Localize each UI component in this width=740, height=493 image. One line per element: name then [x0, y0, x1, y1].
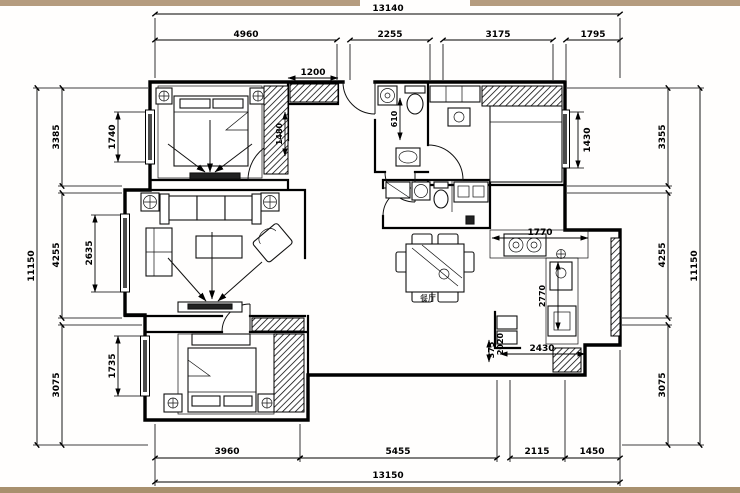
entry-door: [343, 82, 375, 114]
toilet: [405, 86, 425, 114]
dim-left-inner-1: 1740: [108, 124, 118, 149]
dim-top-seg-1: 4960: [233, 30, 258, 40]
dim-bottom-seg-2: 5455: [385, 447, 410, 457]
hall-closet: [290, 84, 338, 102]
closet: [252, 318, 304, 331]
cabinet: [430, 86, 480, 102]
kitchen-sink: [550, 250, 572, 291]
floor-drain: [466, 216, 474, 224]
window-living: [121, 214, 130, 292]
dim-left-overall: 11150: [27, 250, 37, 281]
dim-bottom-seg-3: 2115: [524, 447, 549, 457]
room-dining: 餐厅: [396, 234, 474, 303]
edge-strip-bottom: [0, 487, 740, 493]
sink: [396, 148, 420, 166]
floor-plan-drawing: 13140 4960 2255 3175 1795 3960 5455 2115…: [0, 0, 740, 493]
window-bedroom-top-left: [146, 110, 155, 164]
edge-strip-top-right: [470, 0, 740, 6]
dim-kitchen-side: 2770: [538, 284, 547, 307]
shoe-cabinet: [497, 316, 517, 329]
dim-top-seg-4: 1795: [580, 30, 605, 40]
plant: [141, 193, 159, 211]
dim-top-seg-3: 3175: [485, 30, 510, 40]
dim-left-seg-1: 3385: [52, 124, 62, 149]
dimensions-right: 3355 4255 3075 11150 1430: [566, 88, 704, 445]
bed: [188, 348, 256, 412]
dining-room-label: 餐厅: [420, 294, 436, 303]
dim-top-overall: 13140: [372, 4, 403, 14]
entry-hall: [290, 84, 338, 102]
dimensions-left: 11150 3385 4255 3075 1740 2635 1735: [27, 88, 150, 445]
counter-basins: [454, 182, 488, 202]
tv: [190, 173, 240, 179]
room-living: [141, 193, 293, 312]
dim-right-overall: 11150: [690, 250, 700, 281]
dim-niche-width: 2020: [496, 332, 505, 355]
bed: [490, 106, 562, 182]
floor-plan-page: 13140 4960 2255 3175 1795 3960 5455 2115…: [0, 0, 740, 493]
room-bathroom-top: [378, 86, 425, 166]
room-bedroom-top-right: [430, 86, 562, 182]
dim-niche-depth: 375: [487, 341, 496, 358]
washing-machine: [378, 86, 397, 105]
dim-left-inner-2: 2635: [85, 240, 95, 265]
window-kitchen-east: [611, 238, 620, 336]
coffee-table: [196, 236, 242, 258]
dim-top-seg-2: 2255: [377, 30, 402, 40]
bench-cabinet: [553, 348, 581, 372]
dim-right-seg-2: 4255: [658, 242, 668, 267]
bedroom-top-right-door: [428, 145, 463, 180]
fridge: [548, 306, 576, 336]
room-bedroom-top-left: [156, 86, 288, 179]
dim-passage: 2430: [529, 344, 554, 354]
chaise: [146, 228, 172, 276]
dim-wardrobe: 1480: [275, 122, 284, 145]
dim-kitchen-counter: 1770: [527, 228, 552, 238]
dim-bottom-seg-4: 1450: [579, 447, 604, 457]
dimensions-top: 13140 4960 2255 3175 1795: [155, 4, 620, 80]
armchair: [251, 221, 294, 263]
dresser: [192, 334, 250, 345]
dim-bottom-overall: 13150: [372, 471, 403, 481]
dim-entry-closet: 1200: [300, 68, 325, 78]
dim-right-inner-1: 1430: [583, 127, 593, 152]
paper-edge-strips: [0, 0, 740, 493]
edge-strip-top-left: [0, 0, 360, 6]
dim-left-inner-3: 1735: [108, 353, 118, 378]
tv-cabinet: [178, 302, 242, 312]
plant: [261, 193, 279, 211]
dining-table: [406, 244, 464, 292]
window-bedroom-bottom: [141, 336, 150, 396]
dim-left-seg-3: 3075: [52, 372, 62, 397]
washer: [412, 182, 430, 200]
wardrobe: [274, 334, 304, 412]
dim-bottom-seg-1: 3960: [214, 447, 239, 457]
dim-left-seg-2: 4255: [52, 242, 62, 267]
room-bathroom-middle: [386, 180, 488, 224]
dim-right-seg-3: 3075: [658, 372, 668, 397]
wardrobe: [482, 86, 562, 106]
dim-bath-door: 610: [390, 110, 399, 127]
toilet: [434, 182, 448, 208]
sofa: [160, 194, 261, 224]
dim-right-seg-1: 3355: [658, 124, 668, 149]
nightstand: [448, 108, 470, 126]
